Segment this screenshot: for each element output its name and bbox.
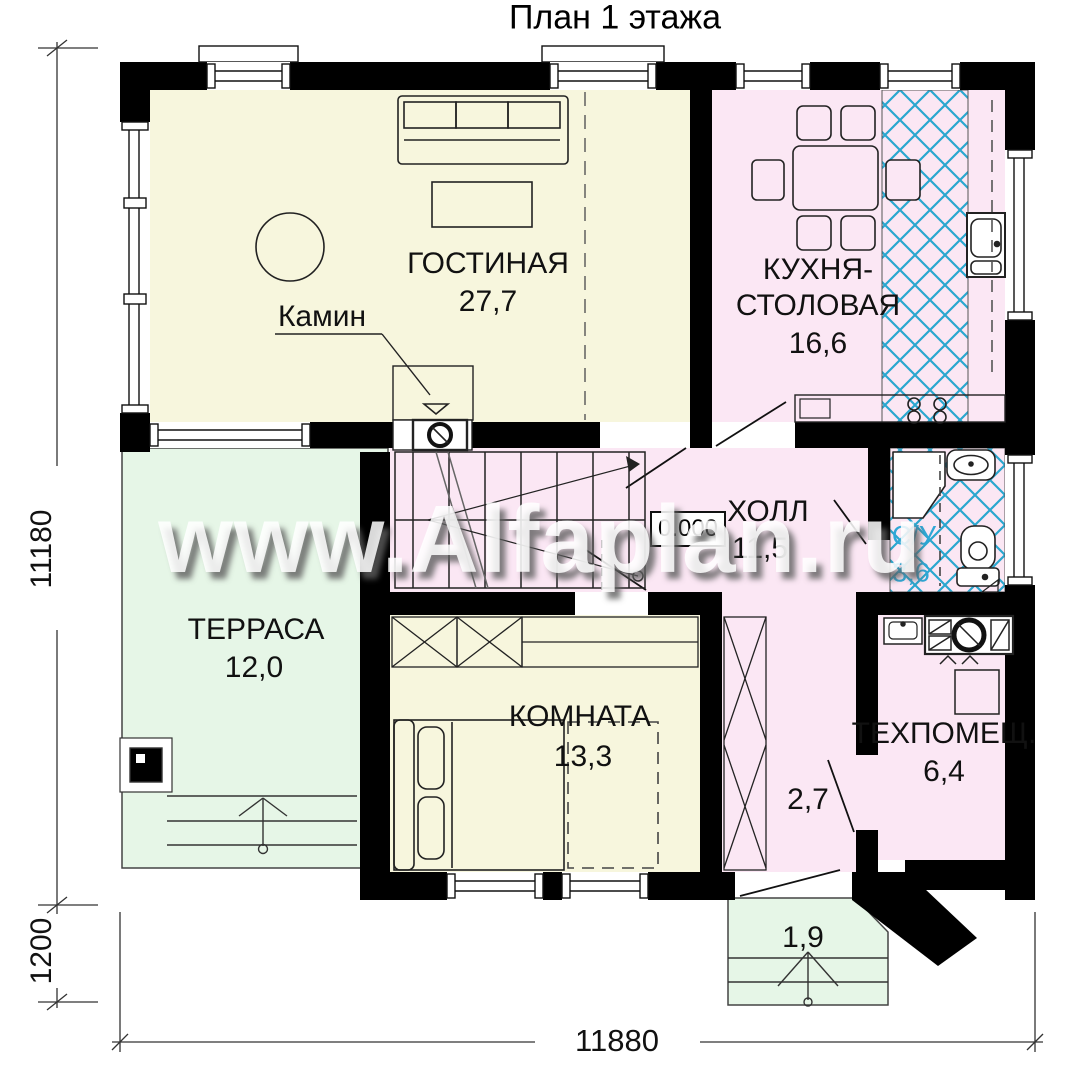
room-label-terrace-name: ТЕРРАСА (188, 613, 325, 648)
fireplace-label: Камин (278, 300, 366, 335)
room-label-living-area: 27,7 (459, 285, 517, 320)
room-label-terrace-area: 12,0 (225, 651, 283, 686)
room-label-living-name: ГОСТИНАЯ (407, 247, 569, 282)
room-label-tech-name: ТЕХПОМЕЩ. (852, 717, 1037, 752)
room-label-bedroom-area: 13,3 (554, 740, 612, 775)
watermark: www.Alfaplan.ru (158, 485, 922, 595)
plan-title: План 1 этажа (509, 0, 721, 38)
dimension-width-total: 11880 (575, 1023, 659, 1059)
dimension-height-total: 11180 (25, 510, 59, 589)
room-label-bedroom-name: КОМНАТА (509, 700, 651, 735)
room-label-corridor-area: 2,7 (787, 783, 829, 818)
floor-plan-canvas: План 1 этажа (0, 0, 1080, 1080)
room-label-kitchen-name-1: КУХНЯ- (763, 253, 873, 288)
room-label-porch-area: 1,9 (782, 921, 824, 956)
room-label-tech-area: 6,4 (923, 755, 965, 790)
room-label-kitchen-name-2: СТОЛОВАЯ (736, 289, 900, 324)
dimension-porch-depth: 1200 (25, 918, 59, 985)
room-label-kitchen-area: 16,6 (789, 327, 847, 362)
